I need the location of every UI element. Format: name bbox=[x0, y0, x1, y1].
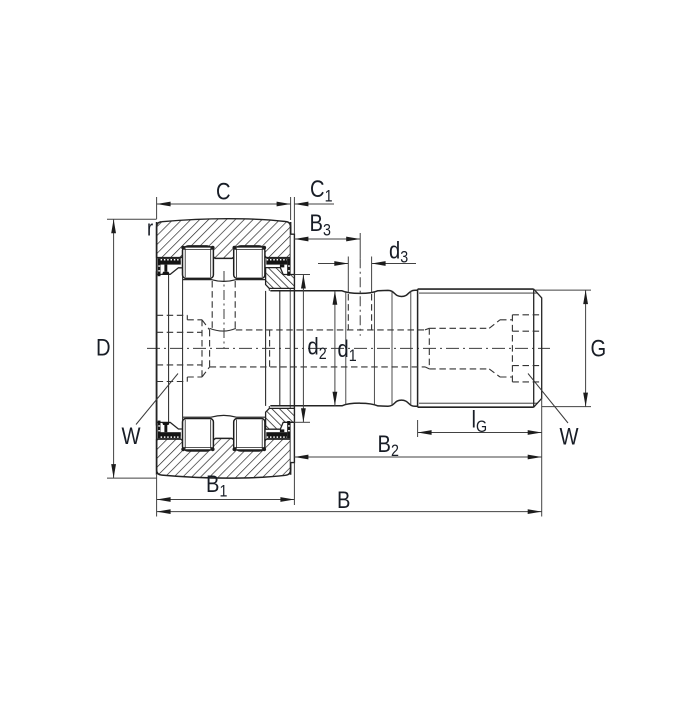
svg-text:B: B bbox=[337, 486, 350, 513]
svg-text:r: r bbox=[147, 217, 153, 241]
svg-text:W: W bbox=[560, 423, 579, 450]
svg-text:C: C bbox=[216, 178, 231, 205]
svg-text:W: W bbox=[122, 422, 141, 449]
svg-text:G: G bbox=[591, 335, 607, 362]
svg-text:D: D bbox=[96, 334, 111, 361]
